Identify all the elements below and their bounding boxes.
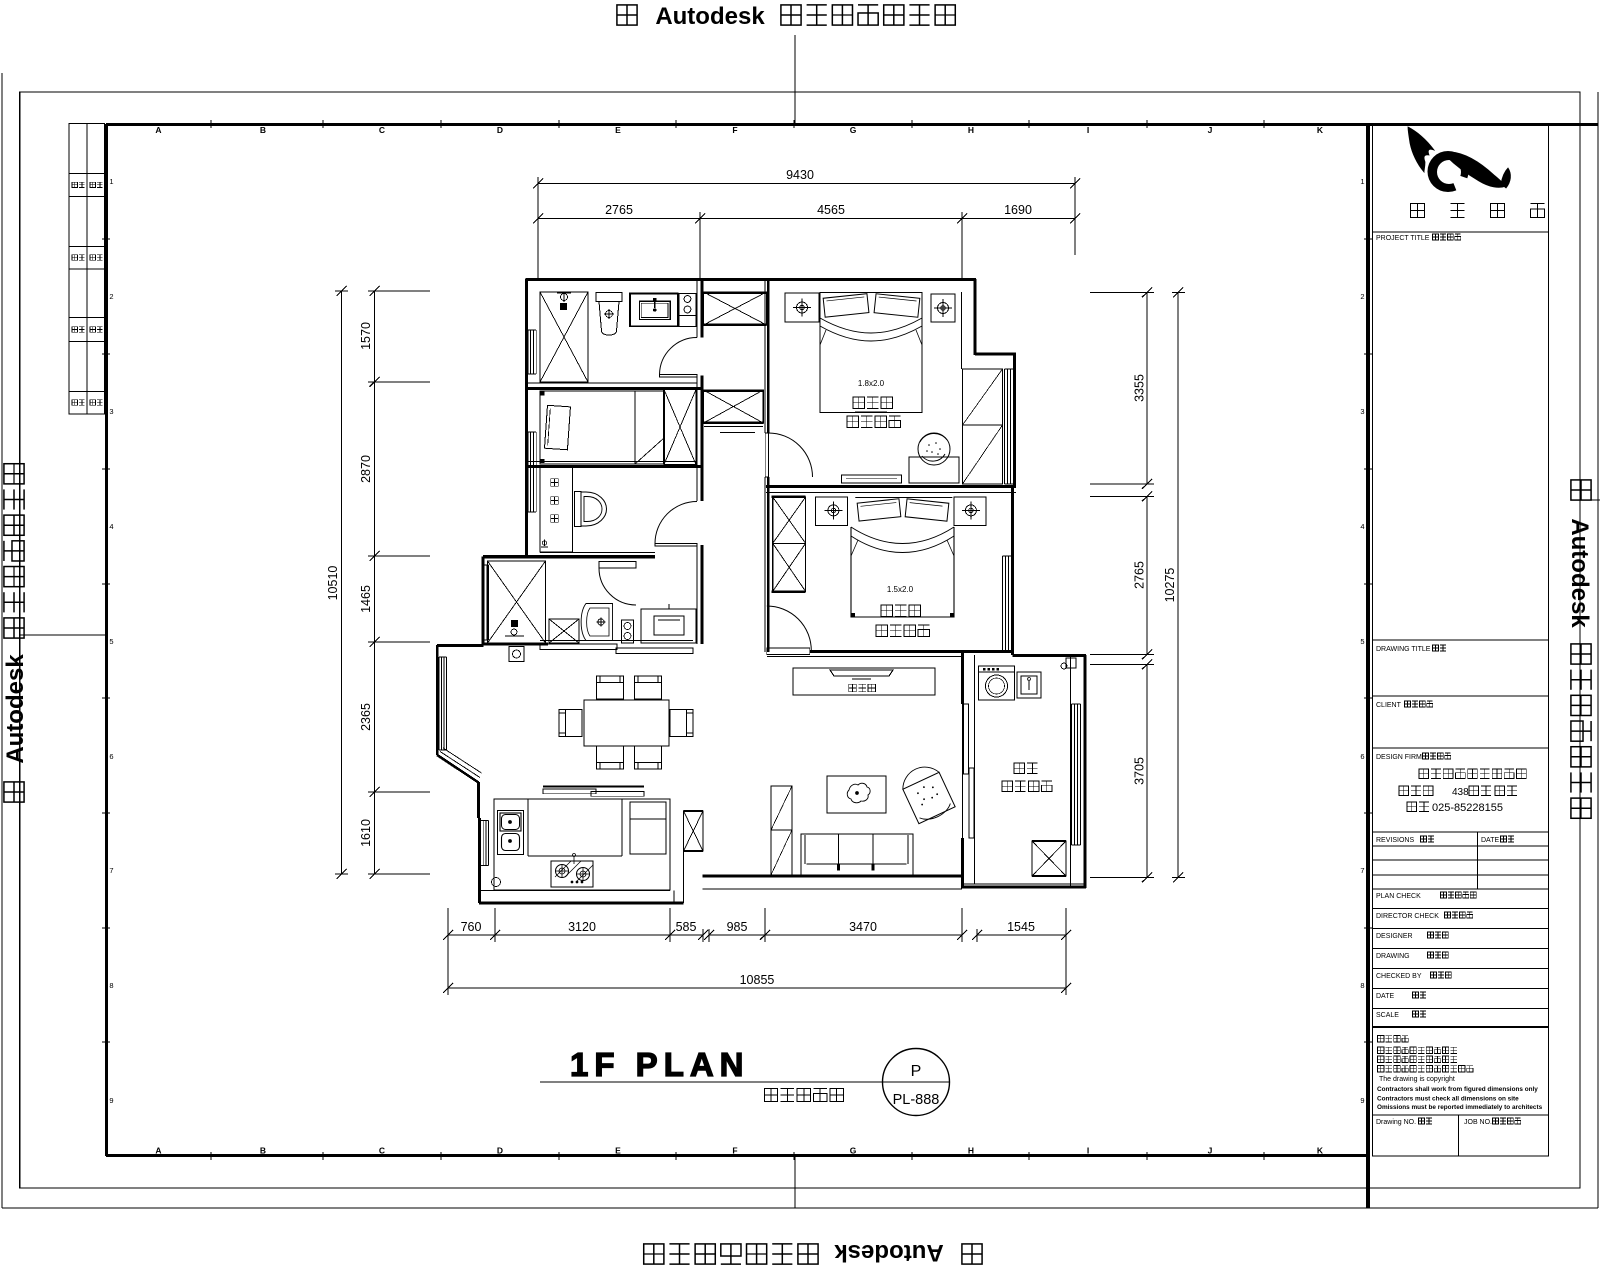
svg-text:3705: 3705 xyxy=(1133,757,1147,785)
svg-text:DESIGNER: DESIGNER xyxy=(1376,933,1413,940)
svg-text:6: 6 xyxy=(109,752,113,761)
svg-text:F: F xyxy=(732,125,737,135)
svg-text:E: E xyxy=(615,125,621,135)
svg-text:H: H xyxy=(968,1146,974,1156)
svg-text:985: 985 xyxy=(727,920,748,934)
svg-text:8: 8 xyxy=(109,981,113,990)
svg-text:DRAWING TITLE: DRAWING TITLE xyxy=(1376,646,1431,653)
svg-text:10510: 10510 xyxy=(326,566,340,601)
svg-text:K: K xyxy=(1317,125,1324,135)
svg-text:Autodesk: Autodesk xyxy=(2,654,29,764)
svg-text:2: 2 xyxy=(1360,292,1364,301)
svg-text:The drawing is copyright: The drawing is copyright xyxy=(1379,1076,1455,1083)
svg-text:3470: 3470 xyxy=(849,920,877,934)
svg-text:I: I xyxy=(1087,1146,1089,1156)
svg-text:1.5x2.0: 1.5x2.0 xyxy=(887,585,914,594)
svg-text:4: 4 xyxy=(1360,522,1364,531)
svg-text:9430: 9430 xyxy=(786,168,814,182)
svg-text:DIRECTOR CHECK: DIRECTOR CHECK xyxy=(1376,913,1439,920)
svg-text:PLAN CHECK: PLAN CHECK xyxy=(1376,893,1421,900)
svg-text:Contractors shall work from fi: Contractors shall work from figured dime… xyxy=(1377,1086,1538,1093)
svg-text:PL-888: PL-888 xyxy=(893,1092,940,1108)
svg-text:2365: 2365 xyxy=(359,703,373,731)
svg-text:2765: 2765 xyxy=(605,203,633,217)
svg-text:Autodesk: Autodesk xyxy=(655,3,765,30)
svg-text:025-85228155: 025-85228155 xyxy=(1432,802,1503,814)
svg-text:1F PLAN: 1F PLAN xyxy=(570,1046,750,1083)
svg-text:438: 438 xyxy=(1452,787,1469,798)
svg-text:A: A xyxy=(155,125,161,135)
svg-text:1.8x2.0: 1.8x2.0 xyxy=(858,379,885,388)
svg-text:DATE: DATE xyxy=(1376,993,1394,1000)
svg-text:K: K xyxy=(1317,1146,1324,1156)
svg-text:5: 5 xyxy=(1360,637,1364,646)
svg-text:585: 585 xyxy=(676,920,697,934)
svg-text:7: 7 xyxy=(1360,866,1364,875)
svg-text:Drawing NO.: Drawing NO. xyxy=(1376,1119,1416,1126)
svg-text:CHECKED BY: CHECKED BY xyxy=(1376,973,1422,980)
svg-text:D: D xyxy=(497,1146,503,1156)
svg-text:1610: 1610 xyxy=(359,819,373,847)
svg-text:4: 4 xyxy=(109,522,113,531)
svg-text:REVISIONS: REVISIONS xyxy=(1376,837,1414,844)
svg-text:Contractors must check all dim: Contractors must check all dimensions on… xyxy=(1377,1096,1519,1103)
svg-text:F: F xyxy=(732,1146,737,1156)
svg-text:4565: 4565 xyxy=(817,203,845,217)
svg-text:I: I xyxy=(1087,125,1089,135)
svg-text:6: 6 xyxy=(1360,752,1364,761)
svg-text:2: 2 xyxy=(109,292,113,301)
svg-text:P: P xyxy=(911,1063,922,1080)
svg-text:5: 5 xyxy=(109,637,113,646)
svg-text:SCALE: SCALE xyxy=(1376,1012,1399,1019)
svg-text:D: D xyxy=(497,125,503,135)
svg-text:3: 3 xyxy=(109,407,113,416)
svg-text:C: C xyxy=(379,125,385,135)
svg-text:1545: 1545 xyxy=(1007,920,1035,934)
svg-text:7: 7 xyxy=(109,866,113,875)
svg-text:B: B xyxy=(260,1146,266,1156)
svg-text:E: E xyxy=(615,1146,621,1156)
svg-text:2765: 2765 xyxy=(1133,561,1147,589)
svg-text:1570: 1570 xyxy=(359,322,373,350)
svg-text:A: A xyxy=(155,1146,161,1156)
svg-text:10275: 10275 xyxy=(1163,568,1177,603)
svg-text:G: G xyxy=(850,1146,857,1156)
svg-text:9: 9 xyxy=(1360,1096,1364,1105)
svg-text:H: H xyxy=(968,125,974,135)
svg-text:1690: 1690 xyxy=(1004,203,1032,217)
svg-text:3: 3 xyxy=(1360,407,1364,416)
svg-text:DESIGN FIRM: DESIGN FIRM xyxy=(1376,754,1422,761)
svg-text:3120: 3120 xyxy=(568,920,596,934)
svg-text:B: B xyxy=(260,125,266,135)
svg-text:CLIENT: CLIENT xyxy=(1376,702,1402,709)
svg-text:PROJECT TITLE: PROJECT TITLE xyxy=(1376,235,1430,242)
svg-text:J: J xyxy=(1208,1146,1213,1156)
svg-text:J: J xyxy=(1208,125,1213,135)
svg-text:8: 8 xyxy=(1360,981,1364,990)
svg-text:1: 1 xyxy=(1360,177,1364,186)
svg-text:Autodesk: Autodesk xyxy=(834,1239,944,1266)
svg-text:3355: 3355 xyxy=(1133,374,1147,402)
svg-text:1: 1 xyxy=(109,177,113,186)
svg-text:DRAWING: DRAWING xyxy=(1376,953,1410,960)
svg-text:2870: 2870 xyxy=(359,455,373,483)
svg-text:JOB NO.: JOB NO. xyxy=(1464,1119,1492,1126)
svg-text:C: C xyxy=(379,1146,385,1156)
svg-text:10855: 10855 xyxy=(740,973,775,987)
svg-text:9: 9 xyxy=(109,1096,113,1105)
svg-text:760: 760 xyxy=(461,920,482,934)
svg-text:G: G xyxy=(850,125,857,135)
svg-text:Omissions must be reported imm: Omissions must be reported immediately t… xyxy=(1377,1104,1543,1111)
svg-text:DATE: DATE xyxy=(1481,837,1499,844)
svg-text:1465: 1465 xyxy=(359,585,373,613)
